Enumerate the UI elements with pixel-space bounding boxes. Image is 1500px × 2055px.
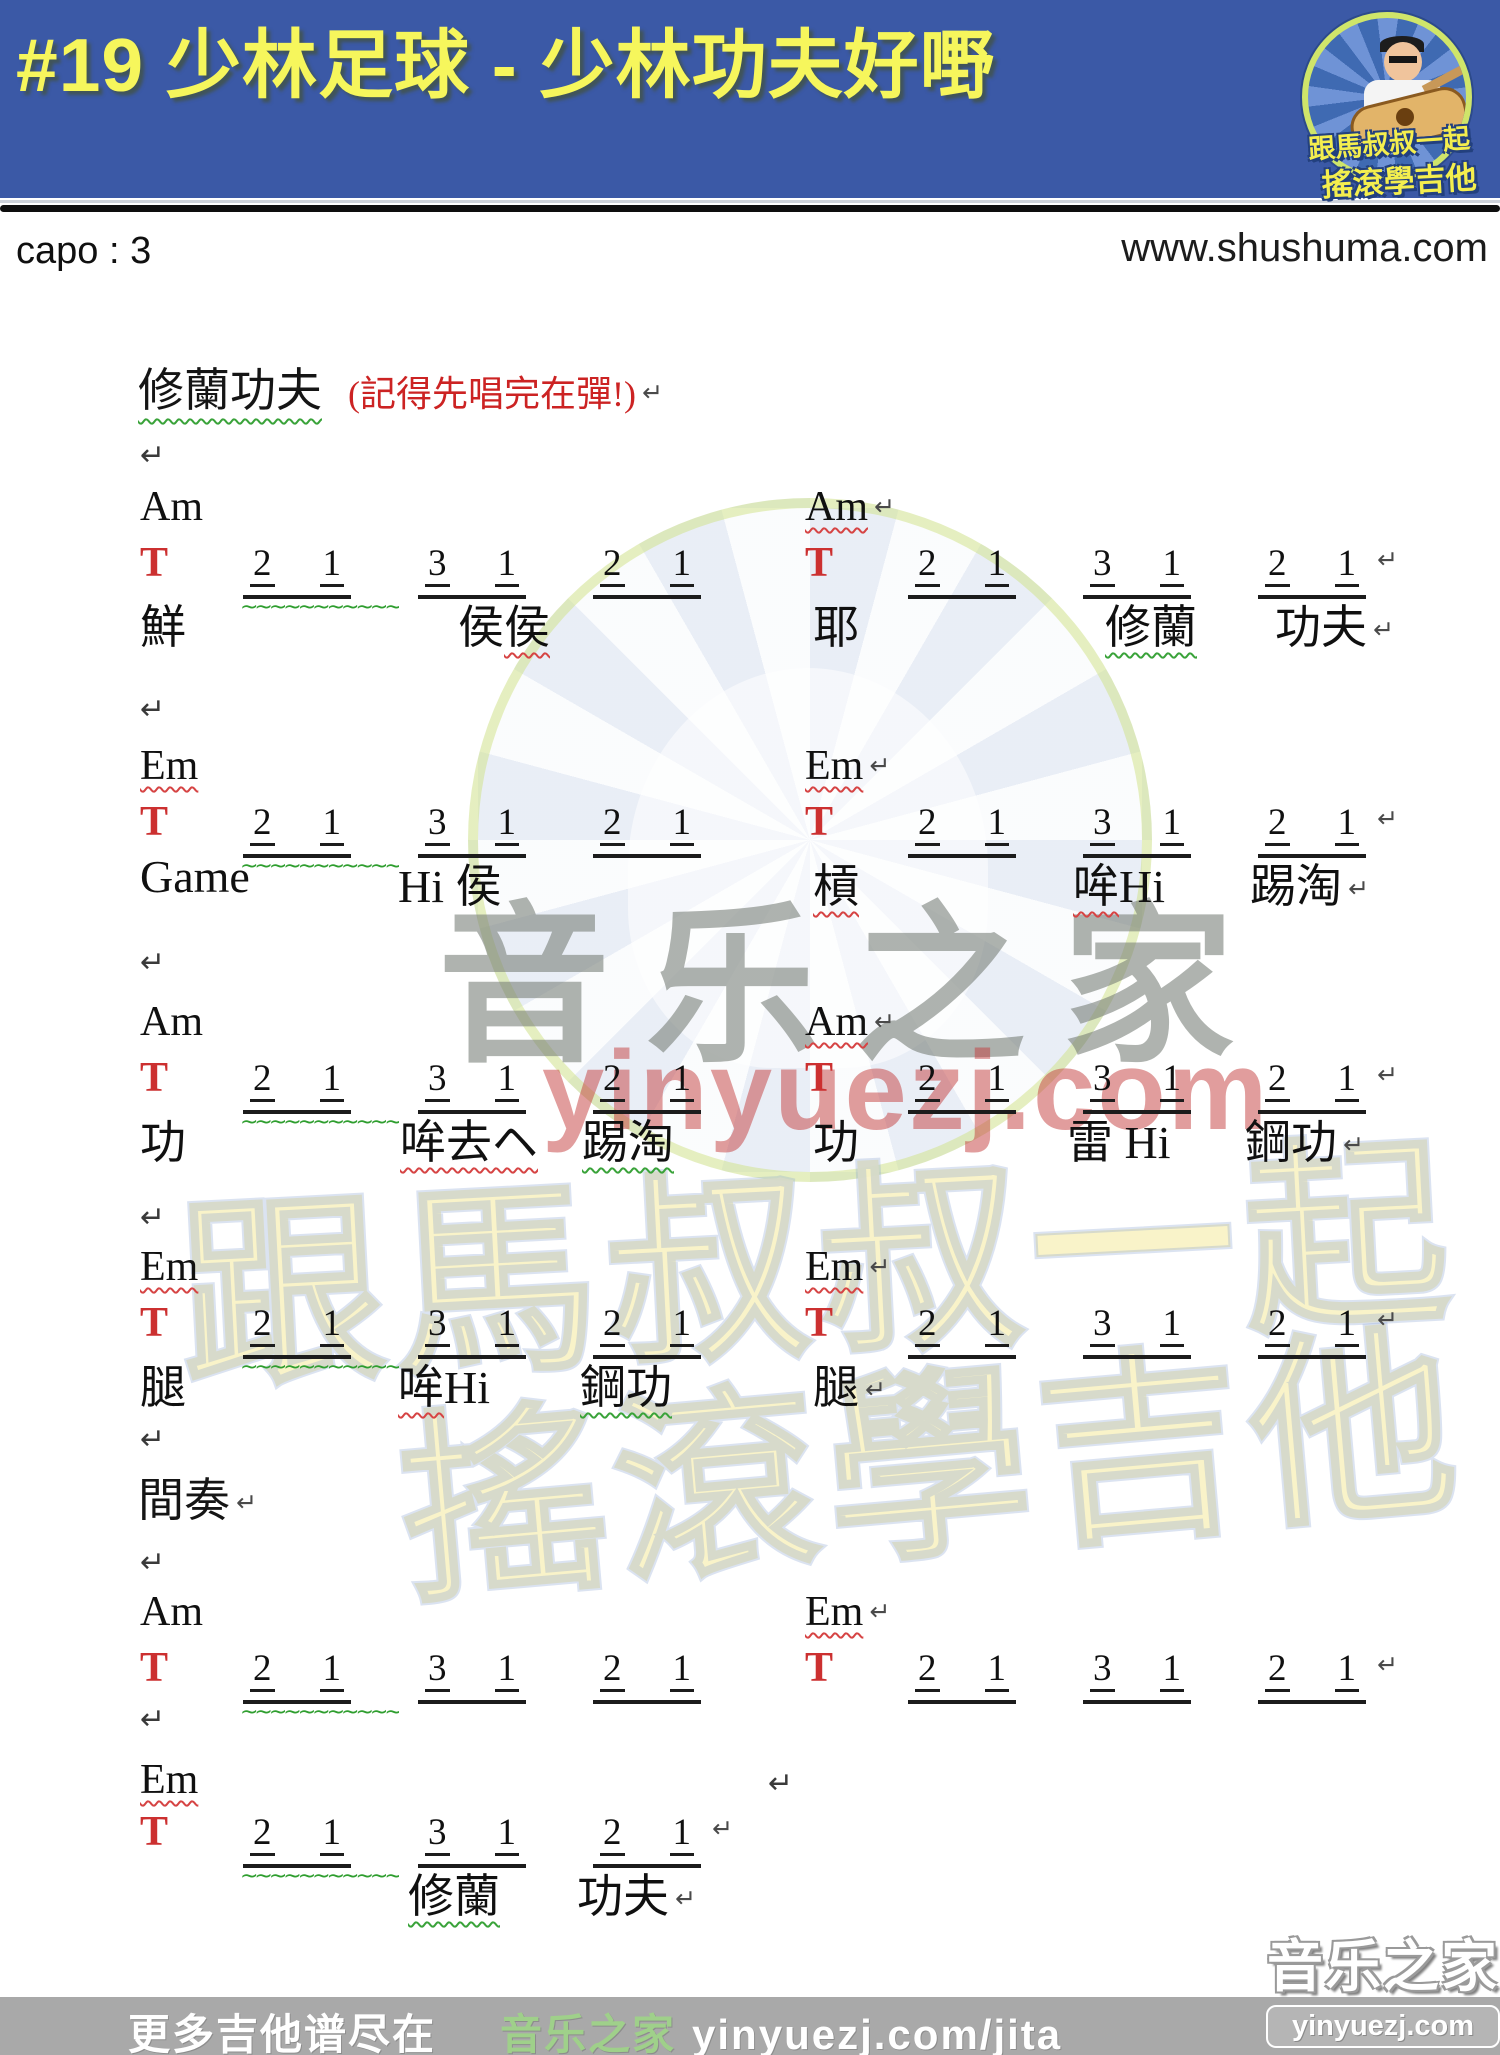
finger-number: 1 [985,1650,1010,1692]
finger-number: 2 [600,1305,625,1347]
finger-number: 3 [425,1305,450,1347]
finger-number: 1 [985,1060,1010,1102]
lyric-text: 修蘭 [408,1871,500,1922]
finger-number: 1 [1335,1650,1360,1692]
return-mark-icon: ↵ [140,1702,165,1737]
beat-group: 31 [418,1650,526,1704]
chord-name: Em↵ [805,1588,890,1636]
beat-group: 31 [1083,1650,1191,1704]
finger-number: 3 [1090,1060,1115,1102]
finger-number: 1 [320,545,345,587]
lyric-syllable: 哞去ヘ [400,1106,538,1172]
header-divider [0,205,1500,212]
lyric-syllable: 功夫↵ [577,1860,696,1926]
finger-number: 2 [1265,804,1290,846]
finger-number: 1 [1335,545,1360,587]
return-mark-icon: ↵ [1373,615,1394,644]
return-mark-icon: ↵ [712,1814,733,1843]
finger-number: 1 [1335,804,1360,846]
beat-group: 21 [908,545,1016,599]
finger-number: 3 [425,1060,450,1102]
finger-number: 1 [1160,804,1185,846]
lyric-text: Hi 侯 [398,861,502,912]
lyric-text: Hi [444,1362,490,1413]
footer-more-label: 更多吉他谱尽在 [128,2011,436,2055]
lyric-text: 腿 [813,1362,859,1413]
chord-name: Am [140,483,203,531]
finger-number: 1 [320,1814,345,1856]
lyric-text: 踢淘 [1250,861,1342,912]
return-mark-icon: ↵ [1377,1305,1398,1334]
finger-number: 2 [915,804,940,846]
lyric-syllable: 功夫↵ [1275,591,1394,657]
footer-url: yinyuezj.com/jita [692,2011,1062,2055]
finger-number: 1 [320,1060,345,1102]
finger-number: 2 [250,1060,275,1102]
lyric-text: 踢淘 [582,1117,674,1168]
finger-number: 2 [1265,1650,1290,1692]
lyric-syllable: 功 [140,1106,186,1172]
finger-number: 2 [600,804,625,846]
logo-man-glasses [1389,56,1417,63]
capo-label: capo : 3 [16,230,151,273]
return-mark-icon: ↵ [675,1884,696,1913]
section-heading-note: (記得先唱完在彈!) [348,374,636,414]
chord-name: Em↵ [805,1243,890,1291]
page-title: #19 少林足球 - 少林功夫好嘢 [16,4,996,113]
lyric-syllable: 耶 [813,591,859,657]
finger-number: 1 [670,1650,695,1692]
lyric-syllable: 功 [813,1106,859,1172]
lyric-text: 哞 [398,1362,444,1413]
thumb-symbol: T [805,1299,833,1347]
lyric-syllable: 哞Hi [398,1351,490,1417]
finger-number: 2 [600,545,625,587]
finger-number: 2 [915,545,940,587]
return-mark-icon: ↵ [642,378,663,407]
finger-number: 3 [425,1650,450,1692]
beat-group: 21 [243,1814,351,1868]
thumb-symbol: T [805,1644,833,1692]
finger-number: 3 [425,545,450,587]
return-mark-icon: ↵ [869,751,890,780]
beat-group: 21 [243,1305,351,1359]
finger-number: 2 [250,1650,275,1692]
chord-name: Em↵ [805,742,890,790]
finger-number: 2 [250,1305,275,1347]
chord-name: Em [140,1243,198,1291]
lyric-syllable: 鮮 [140,591,186,657]
finger-number: 2 [250,804,275,846]
corner-url-text: yinyuezj.com [1266,2005,1500,2048]
finger-number: 1 [1160,1650,1185,1692]
lyric-text: 功 [813,1117,859,1168]
lyric-text: 哞去ヘ [400,1117,538,1168]
finger-number: 2 [1265,1060,1290,1102]
lyric-syllable: 腿 [140,1351,186,1417]
lyric-text: 鮮 [140,602,186,653]
finger-number: 3 [425,804,450,846]
beat-group: 21 [593,804,701,858]
return-mark-icon: ↵ [1348,874,1369,903]
lyric-syllable: Game [140,850,250,903]
finger-number: 2 [600,1060,625,1102]
song-section-heading: 修蘭功夫(記得先唱完在彈!)↵ [138,354,663,420]
return-mark-icon: ↵ [140,1200,165,1235]
chord-name: Am [140,998,203,1046]
finger-number: 2 [600,1814,625,1856]
return-mark-icon: ↵ [1377,1650,1398,1679]
finger-number: 1 [495,1650,520,1692]
beat-group: 31 [1083,1305,1191,1359]
beat-group: 21 [243,1650,351,1704]
tab-row: T213121 [140,1644,820,1708]
finger-number: 1 [985,545,1010,587]
finger-number: 1 [320,1650,345,1692]
finger-number: 1 [495,804,520,846]
finger-number: 1 [320,804,345,846]
finger-number: 2 [250,545,275,587]
finger-number: 2 [250,1814,275,1856]
lyric-text: 修蘭 [1105,602,1197,653]
lyric-text: 鋼功 [580,1362,672,1413]
finger-number: 1 [670,1814,695,1856]
finger-number: 1 [985,804,1010,846]
tab-row: T213121↵ [805,1644,1485,1708]
lyric-text: 鋼功 [1245,1117,1337,1168]
return-mark-icon: ↵ [1377,804,1398,833]
lyric-syllable: Hi 侯 [398,850,502,916]
beat-group: 21 [908,1305,1016,1359]
beat-group: 21 [1258,1650,1366,1704]
finger-number: 1 [985,1305,1010,1347]
finger-number: 3 [1090,804,1115,846]
lyric-text: Hi [1119,861,1165,912]
lyric-syllable: 哞Hi [1073,850,1165,916]
tab-sheet-page: 跟馬叔叔一起 搖滾學吉他 音乐之家 yinyuezj.com #19 少林足球 … [0,0,1500,2055]
lyric-text: 哞 [1073,861,1119,912]
finger-number: 1 [1335,1305,1360,1347]
return-mark-icon: ↵ [140,945,165,980]
finger-number: 1 [495,545,520,587]
lyric-syllable: 槓 [813,850,859,916]
finger-number: 1 [495,1814,520,1856]
finger-number: 2 [915,1650,940,1692]
thumb-symbol: T [140,1808,168,1856]
header-bar: #19 少林足球 - 少林功夫好嘢 [0,0,1500,198]
interlude-label: 間奏↵ [138,1464,257,1530]
return-mark-icon: ↵ [140,692,165,727]
lyric-text: 功夫 [1275,602,1367,653]
finger-number: 1 [1335,1060,1360,1102]
beat-group: 21 [1258,1305,1366,1359]
finger-number: 1 [670,1305,695,1347]
return-mark-icon: ↵ [1377,1060,1398,1089]
return-mark-icon: ↵ [140,1545,165,1580]
thumb-symbol: T [140,1644,168,1692]
beat-group: 21 [908,804,1016,858]
lyric-syllable: 踢淘 [582,1106,674,1172]
lyric-text: 功夫 [577,1871,669,1922]
finger-number: 1 [670,545,695,587]
return-mark-icon: ↵ [1343,1130,1364,1159]
thumb-symbol: T [805,798,833,846]
chord-name: Am [140,1588,203,1636]
channel-logo: 跟馬叔叔一起 搖滾學吉他 [1286,4,1496,200]
footer-text: 更多吉他谱尽在音乐之家yinyuezj.com/jita [128,2001,1062,2055]
return-mark-icon: ↵ [140,438,165,473]
chord-name: Em [140,1756,198,1804]
interlude-text: 間奏 [138,1475,230,1526]
section-heading-text: 修蘭功夫 [138,365,322,416]
footer-brand-label: 音乐之家 [500,2011,676,2055]
beat-group: 21 [243,1060,351,1114]
finger-number: 2 [915,1060,940,1102]
lyric-syllable: 鋼功 [580,1351,672,1417]
lyric-syllable: 侯侯 [458,591,550,657]
beat-group: 21 [593,1650,701,1704]
finger-number: 1 [495,1305,520,1347]
finger-number: 1 [1160,545,1185,587]
return-mark-icon: ↵ [1377,545,1398,574]
return-mark-icon: ↵ [865,1375,886,1404]
finger-number: 1 [320,1305,345,1347]
thumb-symbol: T [140,798,168,846]
thumb-symbol: T [140,539,168,587]
finger-number: 1 [495,1060,520,1102]
thumb-symbol: T [805,1054,833,1102]
finger-number: 3 [1090,1650,1115,1692]
header-divider-light [0,200,1500,203]
lyric-syllable: 腿↵ [813,1351,886,1417]
finger-number: 3 [425,1814,450,1856]
finger-number: 2 [1265,545,1290,587]
return-mark-icon: ↵ [768,1766,793,1801]
thumb-symbol: T [140,1054,168,1102]
site-url: www.shushuma.com [1121,226,1488,271]
return-mark-icon: ↵ [874,492,895,521]
finger-number: 1 [670,804,695,846]
lyric-text: 耶 [813,602,859,653]
beat-group: 21 [243,804,351,858]
finger-number: 2 [600,1650,625,1692]
finger-number: 3 [1090,545,1115,587]
lyric-syllable: 雷 Hi [1067,1106,1171,1172]
lyric-syllable: 踢淘↵ [1250,850,1369,916]
logo-text-line2: 搖滾學吉他 [1293,151,1500,207]
lyric-syllable: 修蘭 [408,1860,500,1926]
thumb-symbol: T [805,539,833,587]
tab-row: T213121↵ [805,1299,1485,1363]
lyric-text: 侯 [458,602,504,653]
beat-group: 21 [908,1650,1016,1704]
return-mark-icon: ↵ [140,1422,165,1457]
corner-logo: 音乐之家 yinyuezj.com [1266,1922,1500,2048]
lyric-text: 功 [140,1117,186,1168]
corner-brand-text: 音乐之家 [1266,1922,1500,2003]
chord-name: Am↵ [805,483,895,531]
beat-group: 21 [908,1060,1016,1114]
lyric-syllable: 修蘭 [1105,591,1197,657]
lyric-text: 腿 [140,1362,186,1413]
lyric-syllable: 鋼功↵ [1245,1106,1364,1172]
finger-number: 1 [670,1060,695,1102]
lyric-text: 侯 [504,602,550,653]
chord-name: Em [140,742,198,790]
finger-number: 2 [915,1305,940,1347]
finger-number: 1 [1160,1305,1185,1347]
lyric-text: 槓 [813,861,859,912]
finger-number: 3 [1090,1305,1115,1347]
finger-number: 2 [1265,1305,1290,1347]
return-mark-icon: ↵ [869,1252,890,1281]
return-mark-icon: ↵ [236,1488,257,1517]
finger-number: 1 [1160,1060,1185,1102]
beat-group: 21 [593,545,701,599]
lyric-text: Game [140,851,250,902]
return-mark-icon: ↵ [869,1597,890,1626]
thumb-symbol: T [140,1299,168,1347]
chord-name: Am↵ [805,998,895,1046]
beat-group: 21 [243,545,351,599]
lyric-text: 雷 Hi [1067,1117,1171,1168]
return-mark-icon: ↵ [874,1007,895,1036]
